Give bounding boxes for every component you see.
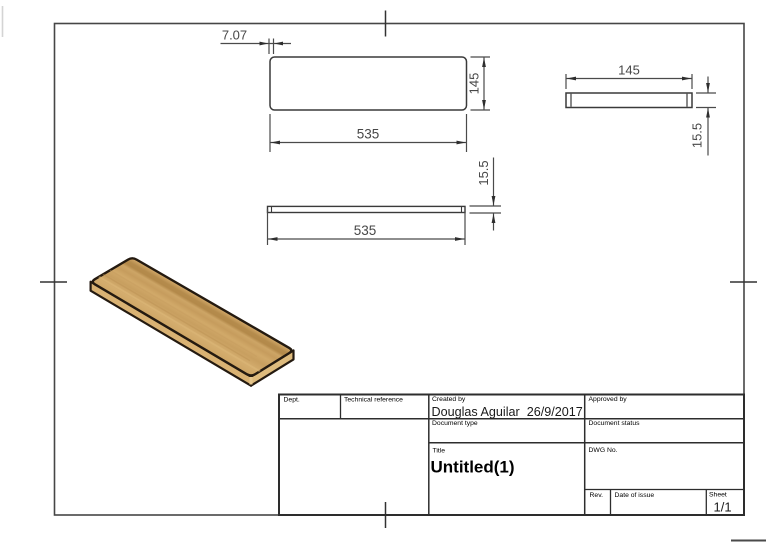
svg-text:15.5: 15.5 [690,123,705,148]
svg-text:Douglas Aguilar 26/9/2017: Douglas Aguilar 26/9/2017 [432,405,583,419]
svg-text:DWG No.: DWG No. [589,447,618,454]
svg-text:Rev.: Rev. [590,492,604,499]
svg-text:Created by: Created by [432,396,466,403]
svg-text:Date of issue: Date of issue [615,492,655,499]
svg-text:15.5: 15.5 [476,160,491,185]
svg-text:Sheet: Sheet [709,492,727,499]
svg-text:535: 535 [354,223,377,238]
svg-text:Dept.: Dept. [284,397,300,404]
svg-text:7.07: 7.07 [222,28,247,43]
svg-text:Document type: Document type [432,420,478,427]
svg-text:535: 535 [357,127,380,142]
svg-text:Document status: Document status [589,420,641,427]
svg-text:1/1: 1/1 [714,500,732,515]
svg-text:Approved by: Approved by [589,396,628,403]
svg-text:145: 145 [467,73,482,95]
svg-text:Title: Title [433,448,446,455]
svg-text:Untitled(1): Untitled(1) [431,458,515,477]
svg-text:145: 145 [618,63,640,78]
svg-text:Technical reference: Technical reference [344,397,403,404]
